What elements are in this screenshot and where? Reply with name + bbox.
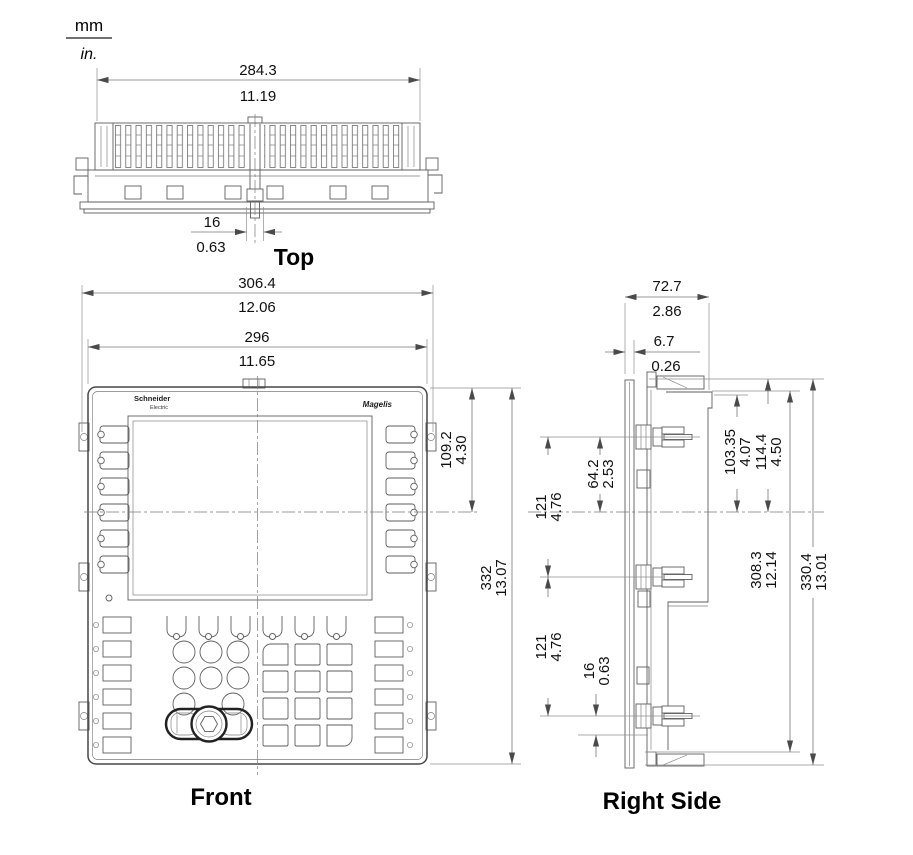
dim-side-overall-height: 330.4 13.01 — [798, 379, 830, 765]
round-keys — [173, 641, 249, 715]
front-view-label: Front — [190, 784, 251, 811]
dim-front-bezel-width: 296 11.65 — [88, 329, 427, 384]
dim-in: 4.50 — [768, 437, 785, 466]
key-column-right — [375, 617, 413, 753]
right-end-bracket — [426, 158, 438, 170]
navigation-pad — [166, 707, 252, 742]
dim-in: 0.63 — [596, 656, 613, 685]
dim-side-clamp-pitch-lower: 121 4.76 — [533, 577, 565, 716]
dim-in: 4.30 — [453, 435, 470, 464]
display-screen — [128, 416, 372, 600]
dim-front-top-to-centerline: 109.2 4.30 — [430, 388, 521, 512]
dim-in: 4.76 — [548, 492, 565, 521]
tab-keys — [167, 616, 346, 640]
dim-in: 12.06 — [238, 299, 276, 316]
dim-mm: 296 — [244, 329, 269, 346]
right-side-view: 72.7 2.86 6.7 0.26 64.2 2.53 121 4.76 12… — [528, 278, 830, 815]
dim-in: 2.53 — [600, 459, 617, 488]
dim-in: 11.19 — [240, 88, 276, 105]
dim-side-overall-depth: 72.7 2.86 — [625, 278, 709, 320]
dim-side-bezel-depth: 6.7 0.26 — [605, 333, 700, 375]
dim-side-clamp-offset-bottom: 16 0.63 — [581, 656, 613, 757]
dim-top-clip-width: 16 0.63 — [191, 207, 282, 256]
dim-side-top-to-centerline: 114.4 4.50 — [753, 379, 785, 512]
dim-mm: 72.7 — [652, 278, 681, 295]
dim-in: 4.76 — [548, 632, 565, 661]
numeric-keypad — [263, 644, 352, 746]
side-profile — [625, 372, 712, 768]
top-view: 284.3 11.19 16 0.63 Top — [74, 62, 442, 270]
dim-in: 2.86 — [652, 303, 681, 320]
right-side-view-label: Right Side — [603, 788, 722, 815]
dim-in: 0.63 — [196, 239, 225, 256]
top-view-device — [74, 114, 442, 244]
dimension-drawing-page: mm in. — [0, 0, 913, 855]
function-keys-left — [98, 426, 129, 601]
units-legend: mm in. — [66, 16, 112, 63]
front-view: Schneider Electric Magelis — [79, 275, 521, 811]
top-hook-bracket — [657, 376, 704, 389]
dim-mm: 306.4 — [238, 275, 276, 292]
units-in-label: in. — [81, 46, 98, 63]
key-column-left — [93, 617, 131, 753]
bottom-foot-bracket — [657, 754, 704, 766]
connector — [167, 186, 183, 199]
dim-in: 0.26 — [651, 358, 680, 375]
dim-side-clamp-to-centerline: 64.2 2.53 — [585, 437, 617, 512]
left-end-bracket — [76, 158, 88, 170]
dim-in: 11.65 — [239, 353, 275, 370]
units-mm-label: mm — [75, 16, 103, 35]
function-keys-right — [386, 426, 417, 573]
brand-logo-sub: Electric — [150, 405, 168, 411]
dim-in: 4.07 — [737, 437, 754, 466]
dim-mm: 6.7 — [654, 333, 675, 350]
dim-mm: 284.3 — [239, 62, 277, 79]
connector — [372, 186, 388, 199]
dim-mm: 16 — [204, 214, 221, 231]
dim-in: 12.14 — [763, 551, 780, 589]
dimension-drawing: mm in. — [0, 0, 913, 855]
connector — [330, 186, 346, 199]
body-detail — [637, 470, 650, 488]
top-view-label: Top — [274, 244, 314, 270]
product-logo: Magelis — [363, 400, 393, 409]
dim-in: 13.01 — [813, 553, 830, 591]
connector — [225, 186, 241, 199]
dim-side-clamp-pitch-upper: 121 4.76 — [533, 437, 565, 577]
brand-logo: Schneider — [134, 394, 170, 403]
dim-top-body-width: 284.3 11.19 — [97, 62, 420, 121]
dim-side-body-top-to-centerline: 103.35 4.07 — [722, 395, 754, 512]
status-led — [106, 595, 112, 601]
connector — [267, 186, 283, 199]
dim-in: 13.07 — [493, 559, 510, 597]
body-detail — [638, 591, 650, 607]
connector — [125, 186, 141, 199]
